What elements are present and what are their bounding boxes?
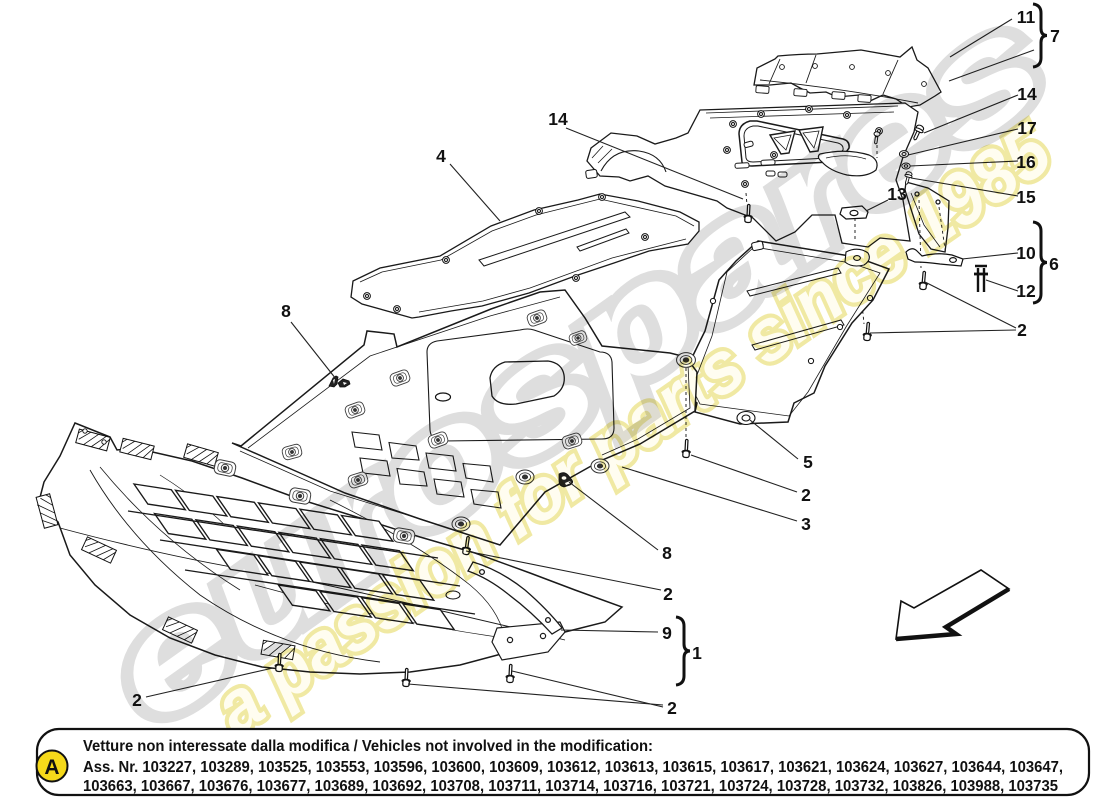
svg-text:8: 8 (662, 543, 672, 563)
svg-text:Vetture non interessate dalla: Vetture non interessate dalla modifica /… (83, 738, 653, 755)
svg-text:2: 2 (801, 485, 811, 505)
svg-text:7: 7 (1050, 26, 1060, 46)
svg-text:2: 2 (667, 698, 677, 718)
svg-text:6: 6 (1049, 254, 1059, 274)
svg-text:3: 3 (801, 514, 811, 534)
svg-text:8: 8 (281, 301, 291, 321)
svg-text:103663, 103667, 103676, 103677: 103663, 103667, 103676, 103677, 103689, … (83, 778, 1058, 795)
svg-text:1: 1 (692, 643, 702, 663)
svg-text:2: 2 (1017, 320, 1027, 340)
svg-text:Ass. Nr. 103227, 103289, 10352: Ass. Nr. 103227, 103289, 103525, 103553,… (83, 759, 1063, 776)
svg-text:12: 12 (1016, 281, 1036, 301)
svg-text:11: 11 (1017, 7, 1036, 27)
svg-text:14: 14 (548, 109, 568, 129)
svg-text:10: 10 (1016, 243, 1036, 263)
svg-text:A: A (44, 756, 59, 779)
svg-text:9: 9 (662, 623, 672, 643)
svg-text:4: 4 (436, 146, 446, 166)
svg-text:2: 2 (663, 584, 673, 604)
svg-text:5: 5 (803, 452, 813, 472)
